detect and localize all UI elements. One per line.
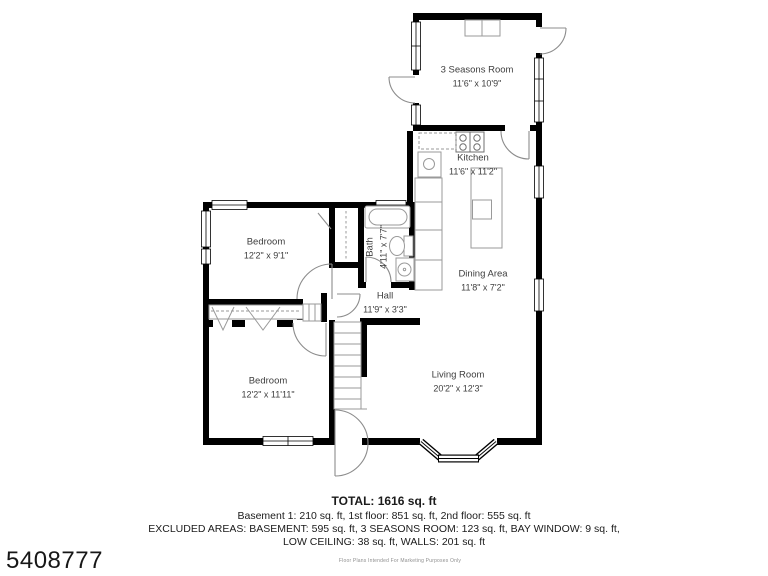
fixtures	[209, 20, 502, 409]
3seasons-cabinet	[465, 20, 500, 36]
window-3seasons-left-lower	[412, 105, 421, 125]
disclaimer-text: Floor Plans Intended For Marketing Purpo…	[0, 558, 768, 564]
window-bedroom-top	[212, 201, 247, 210]
window-dining-right	[535, 279, 544, 311]
window-bedroom-left-lower	[202, 249, 211, 264]
excluded-areas-text-1: EXCLUDED AREAS: BASEMENT: 595 sq. ft, 3 …	[0, 523, 768, 535]
bathtub-symbol	[365, 206, 410, 228]
floor-plan-page: 3 Seasons Room 11'6" x 10'9" Kitchen 11'…	[0, 0, 768, 576]
door-bedroom2	[293, 323, 326, 356]
kitchen-counter-top	[419, 133, 456, 149]
floor-areas-text: Basement 1: 210 sq. ft, 1st floor: 851 s…	[0, 510, 768, 522]
window-3seasons-left-upper	[412, 22, 421, 70]
toilet-symbol	[390, 236, 414, 256]
listing-id: 5408777	[6, 547, 103, 575]
door-bath	[366, 257, 391, 282]
stove-symbol	[456, 132, 484, 152]
total-area-text: TOTAL: 1616 sq. ft	[0, 494, 768, 508]
window-bedroom-left-upper	[202, 211, 211, 247]
kitchen-island	[471, 168, 502, 248]
bedroom-closet-row	[209, 304, 321, 330]
excluded-areas-text-2: LOW CEILING: 38 sq. ft, WALLS: 201 sq. f…	[0, 536, 768, 548]
door-3seasons-topright	[540, 28, 566, 54]
door-3seasons-left	[389, 77, 415, 103]
bath-sink-symbol	[396, 258, 414, 281]
door-kitchen-3seasons	[501, 131, 529, 159]
bay-window	[421, 442, 496, 463]
window-3seasons-right	[535, 58, 544, 122]
door-basement-stairs	[337, 294, 360, 317]
kitchen-cabinets-left	[415, 178, 442, 290]
window-kitchen-right	[535, 166, 544, 198]
floor-plan-drawing	[0, 0, 768, 576]
kitchen-sink-symbol	[418, 152, 441, 177]
window-bedroom2-bottom	[263, 437, 313, 446]
